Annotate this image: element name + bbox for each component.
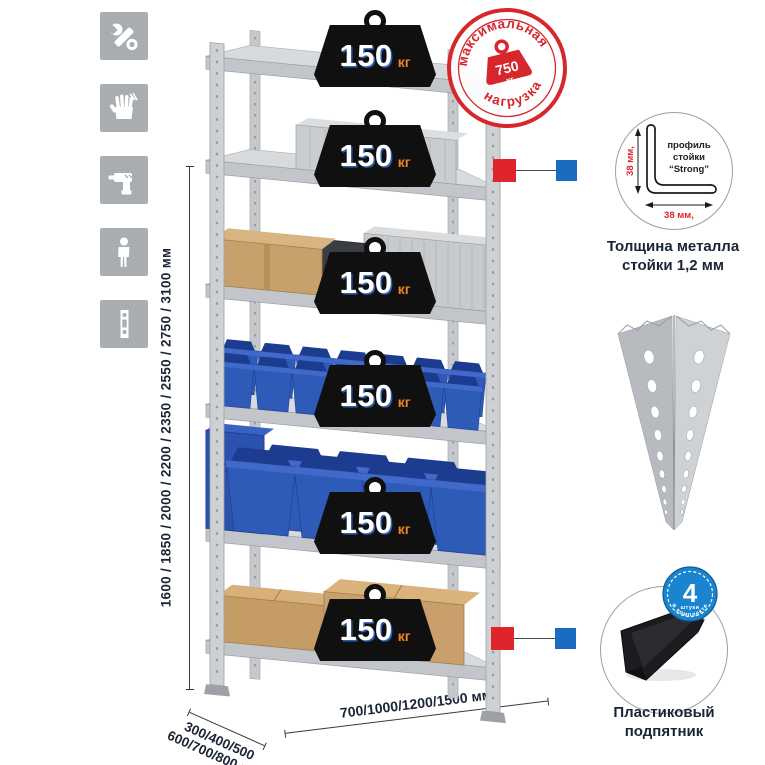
weight-badge-1: 150кг (314, 10, 436, 87)
weight-badge-4: 150кг (314, 350, 436, 427)
profile-detail-art: 38 мм, 38 мм, профиль стойки “Strong” (616, 113, 729, 226)
post-profile-icon (100, 300, 148, 348)
horizontal-dimension: 38 мм, (645, 202, 713, 221)
gloves-glyph (106, 90, 142, 126)
weight-value: 150 (339, 612, 392, 648)
height-dimension-label: 1600 / 1850 / 2000 / 2200 / 2350 / 2550 … (159, 168, 178, 688)
post-profile-glyph (106, 306, 142, 342)
weight-value: 150 (339, 505, 392, 541)
person-glyph (106, 234, 142, 270)
weight-unit: кг (398, 628, 411, 644)
weight-value: 150 (339, 265, 392, 301)
profile-labels: профиль стойки “Strong” (667, 140, 711, 175)
vertical-dim-label: 38 мм, (625, 146, 636, 176)
top-connector-line (516, 170, 558, 171)
top-connector-blue-marker (556, 160, 577, 181)
rack-foot-left (204, 684, 230, 697)
wrench-icon (100, 12, 148, 60)
weight-badge-6: 150кг (314, 584, 436, 661)
weight-unit: кг (398, 521, 411, 537)
weight-unit: кг (398, 154, 411, 170)
weight-unit: кг (398, 394, 411, 410)
profile-label-2: стойки (673, 152, 705, 163)
weight-badge-3: 150кг (314, 237, 436, 314)
badge-quantity-value: 4 (683, 578, 698, 608)
wrench-glyph (106, 18, 142, 54)
weight-badge-5: 150кг (314, 477, 436, 554)
gloves-icon (100, 84, 148, 132)
bottom-connector-blue-marker (555, 628, 576, 649)
weight-value: 150 (339, 38, 392, 74)
profile-label-1: профиль (667, 140, 711, 151)
top-connector-red-marker (493, 159, 516, 182)
plastic-foot-caption: Пластиковый подпятник (590, 703, 738, 741)
stamp-weight-icon: 750 кг (478, 36, 534, 90)
product-infographic: 1600 / 1850 / 2000 / 2200 / 2350 / 2550 … (0, 0, 765, 765)
horizontal-dim-label: 38 мм, (664, 210, 694, 221)
person-icon (100, 228, 148, 276)
drill-icon (100, 156, 148, 204)
weight-unit: кг (398, 54, 411, 70)
vertical-dimension: 38 мм, (625, 128, 641, 194)
quantity-badge: 4 штуки в комплекте (661, 565, 719, 623)
plastic-foot-line1: Пластиковый (590, 703, 738, 722)
metal-thickness-caption: Толщина металла стойки 1,2 мм (585, 237, 761, 275)
metal-thickness-line1: Толщина металла (585, 237, 761, 256)
drill-glyph (106, 162, 142, 198)
perforated-corner-post (602, 300, 747, 540)
weight-value: 150 (339, 138, 392, 174)
badge-quantity-unit: штуки (680, 605, 699, 611)
weight-value: 150 (339, 378, 392, 414)
profile-label-3: “Strong” (669, 164, 709, 175)
bottom-connector-red-marker (491, 627, 514, 650)
bottom-connector-line (514, 638, 557, 639)
metal-thickness-line2: стойки 1,2 мм (585, 256, 761, 275)
weight-unit: кг (398, 281, 411, 297)
rack-foot-right (480, 711, 506, 724)
plastic-foot-line2: подпятник (590, 722, 738, 741)
weight-badge-2: 150кг (314, 110, 436, 187)
profile-detail-circle: 38 мм, 38 мм, профиль стойки “Strong” (615, 112, 733, 230)
